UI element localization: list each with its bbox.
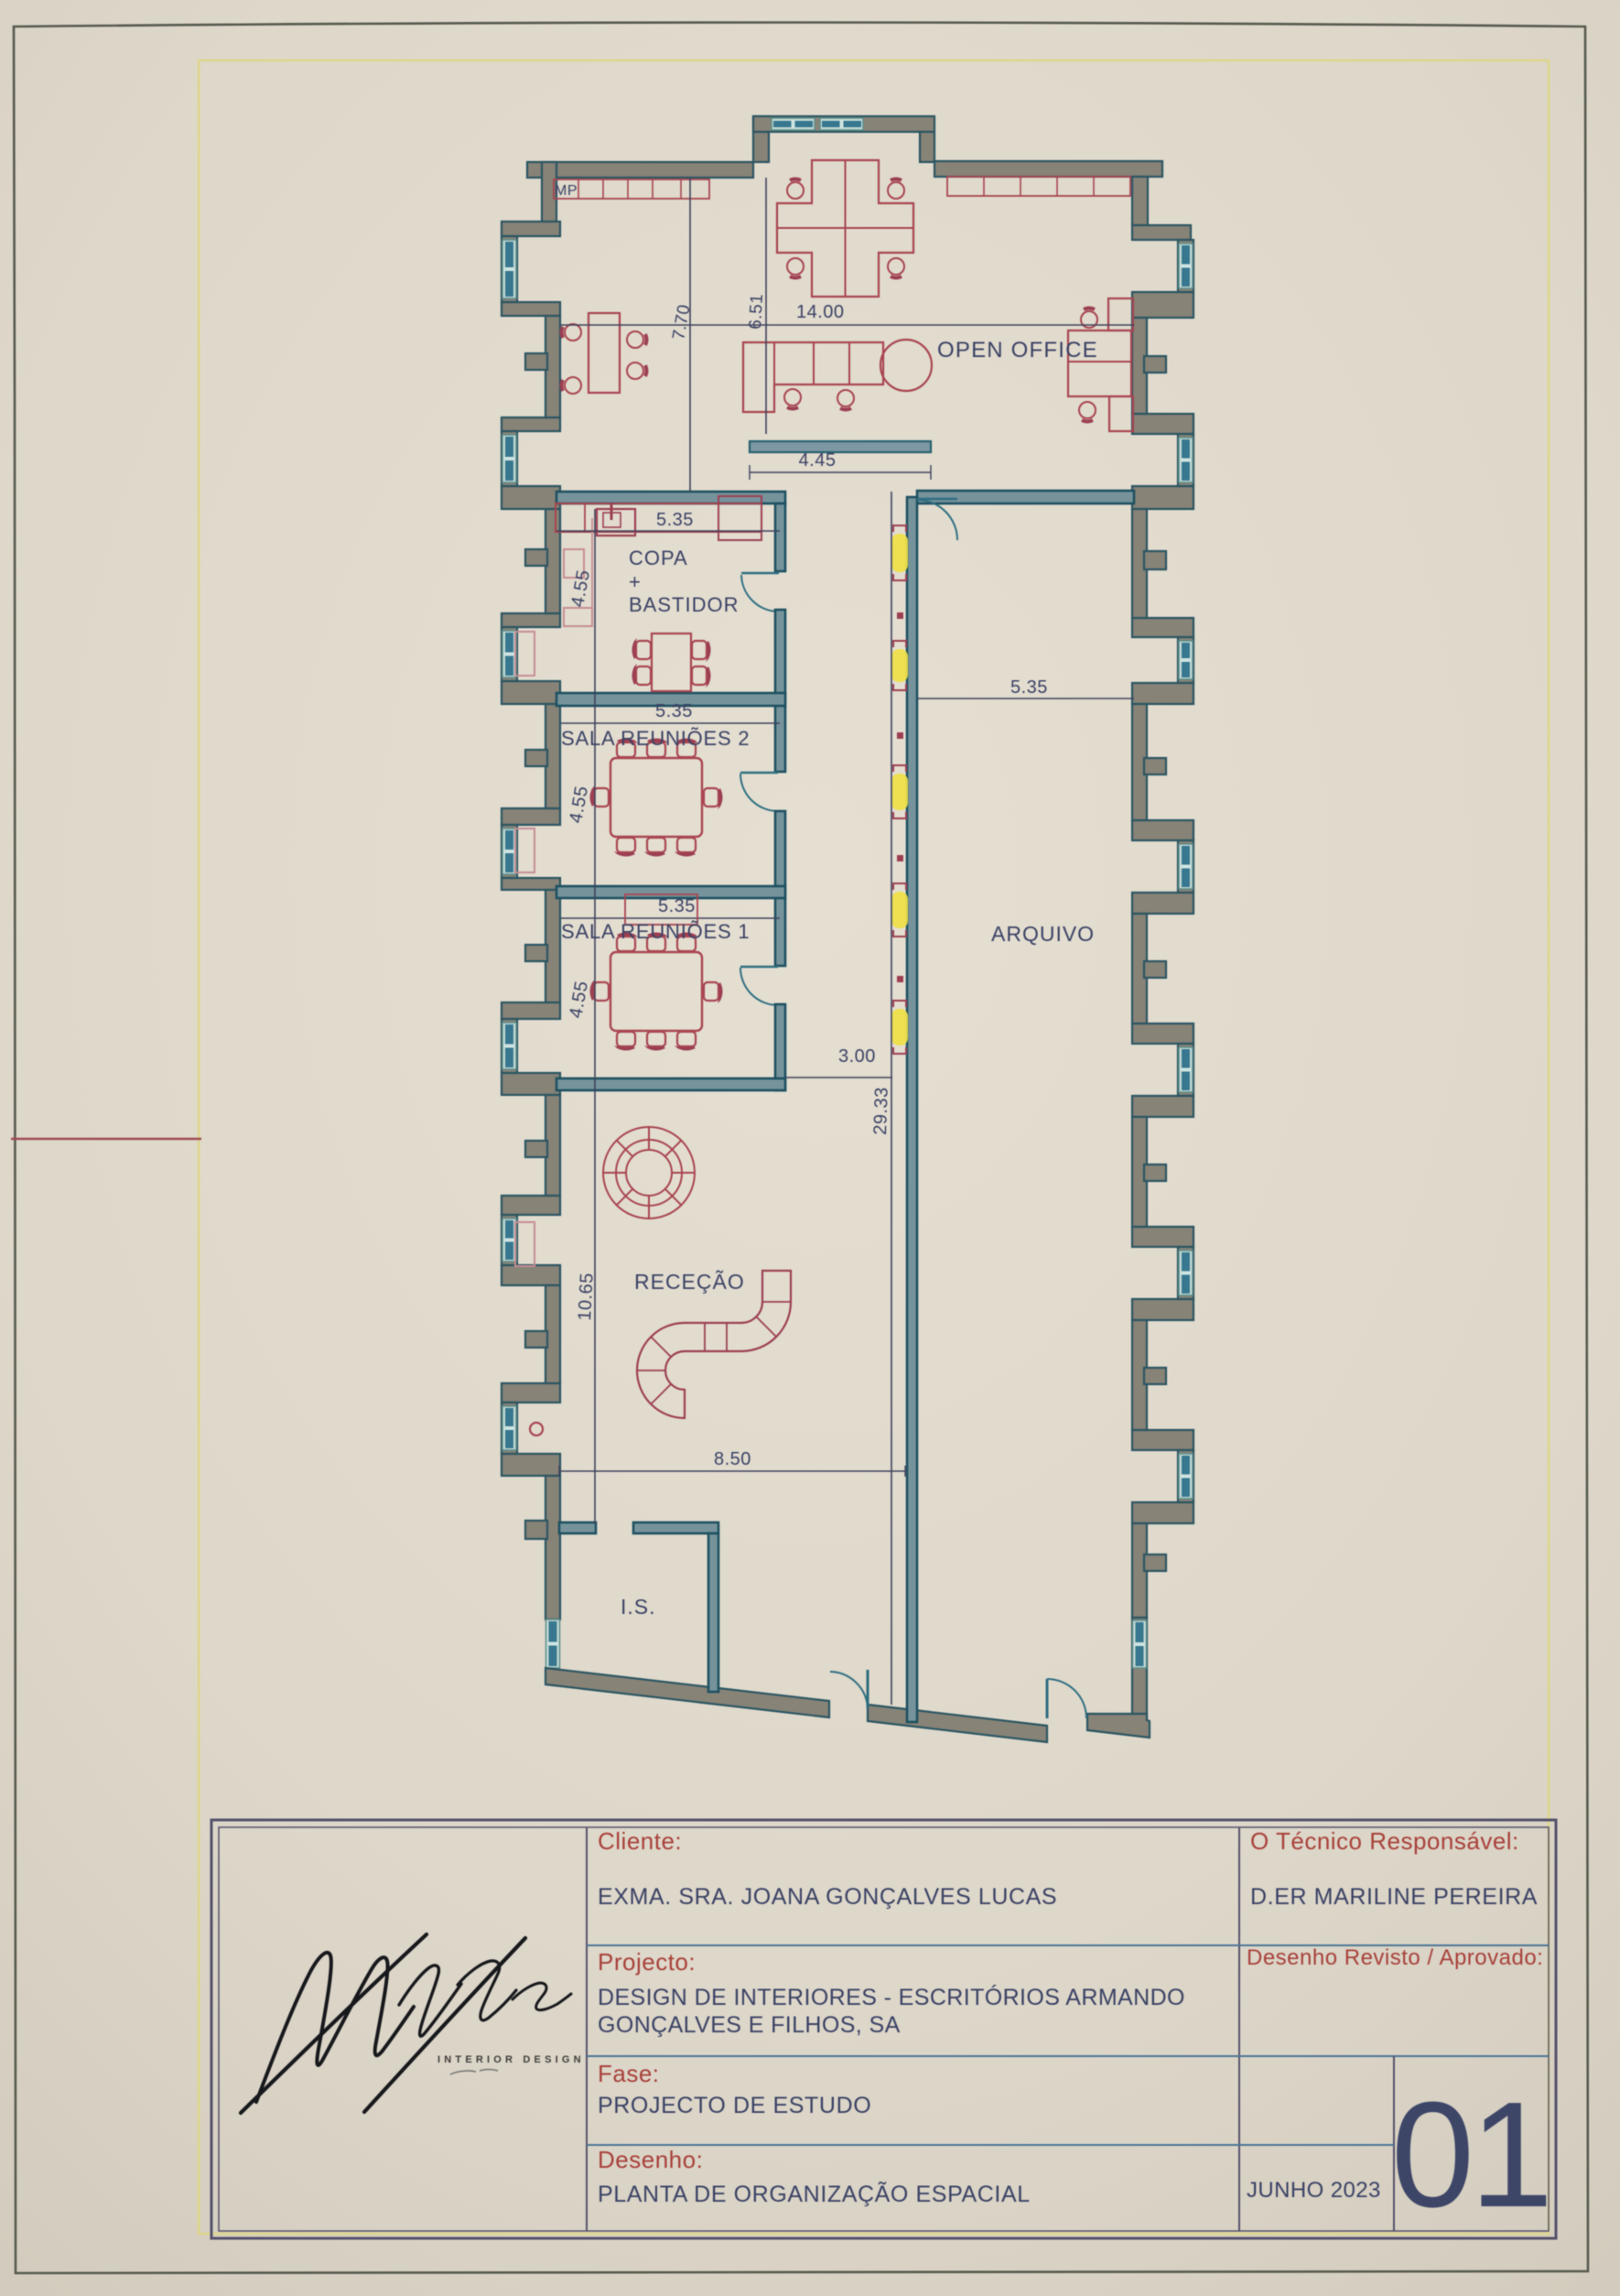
svg-text:BASTIDOR: BASTIDOR <box>629 593 739 616</box>
svg-text:14.00: 14.00 <box>796 302 845 322</box>
svg-text:8.50: 8.50 <box>714 1449 751 1469</box>
svg-text:4.55: 4.55 <box>566 785 592 825</box>
svg-text:4.55: 4.55 <box>567 569 594 609</box>
svg-text:5.35: 5.35 <box>658 896 696 916</box>
svg-text:4.45: 4.45 <box>799 450 837 471</box>
svg-text:29.33: 29.33 <box>870 1087 892 1135</box>
svg-text:I.S.: I.S. <box>621 1595 656 1619</box>
svg-text:Cliente:: Cliente: <box>598 1827 682 1855</box>
svg-text:10.65: 10.65 <box>575 1273 598 1322</box>
svg-text:Fase:: Fase: <box>598 2060 660 2087</box>
svg-text:5.35: 5.35 <box>656 510 694 530</box>
svg-text:3.00: 3.00 <box>838 1046 876 1067</box>
svg-text:5.35: 5.35 <box>655 701 693 721</box>
svg-text:4.55: 4.55 <box>566 980 592 1020</box>
svg-text:PROJECTO DE ESTUDO: PROJECTO DE ESTUDO <box>598 2093 871 2118</box>
svg-text:INTERIOR DESIGN: INTERIOR DESIGN <box>437 2054 585 2065</box>
svg-text:JUNHO 2023: JUNHO 2023 <box>1247 2178 1381 2203</box>
svg-text:OPEN OFFICE: OPEN OFFICE <box>937 338 1098 363</box>
svg-text:SALA REUNIÕES 1: SALA REUNIÕES 1 <box>561 920 750 943</box>
svg-text:ARQUIVO: ARQUIVO <box>991 922 1095 946</box>
svg-text:6.51: 6.51 <box>746 293 767 330</box>
svg-text:O Técnico Responsável:: O Técnico Responsável: <box>1250 1827 1519 1855</box>
svg-text:EXMA. SRA. JOANA GONÇALVES LUC: EXMA. SRA. JOANA GONÇALVES LUCAS <box>598 1884 1057 1910</box>
svg-text:+: + <box>629 570 641 593</box>
svg-text:D.ER MARILINE PEREIRA: D.ER MARILINE PEREIRA <box>1250 1884 1538 1910</box>
svg-text:5.35: 5.35 <box>1010 677 1048 698</box>
svg-text:SALA REUNIÕES 2: SALA REUNIÕES 2 <box>561 727 750 750</box>
svg-text:DESIGN DE INTERIORES - ESCRITÓ: DESIGN DE INTERIORES - ESCRITÓRIOS ARMAN… <box>598 1984 1185 2010</box>
svg-text:GONÇALVES E FILHOS, SA: GONÇALVES E FILHOS, SA <box>598 2012 901 2038</box>
svg-text:MP: MP <box>555 183 578 199</box>
svg-text:PLANTA DE ORGANIZAÇÃO ESPACIAL: PLANTA DE ORGANIZAÇÃO ESPACIAL <box>598 2181 1031 2207</box>
svg-text:Projecto:: Projecto: <box>598 1948 696 1976</box>
svg-text:Desenho:: Desenho: <box>598 2146 703 2173</box>
svg-text:01: 01 <box>1391 2071 1549 2238</box>
svg-text:Desenho Revisto / Aprovado:: Desenho Revisto / Aprovado: <box>1247 1945 1543 1970</box>
svg-text:RECEÇÃO: RECEÇÃO <box>634 1270 745 1294</box>
svg-text:COPA: COPA <box>629 547 688 569</box>
